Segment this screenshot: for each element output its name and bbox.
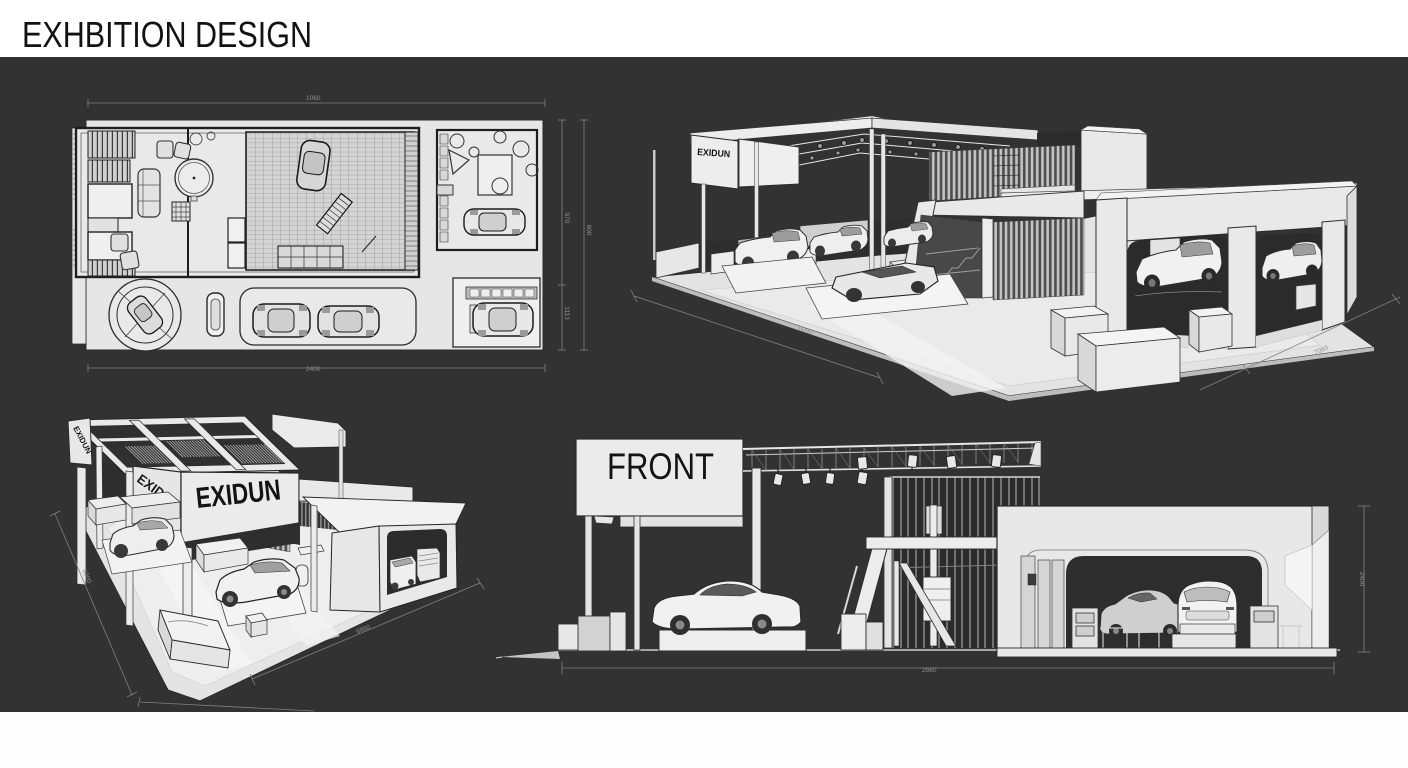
svg-text:EXHBITION DESIGN: EXHBITION DESIGN (22, 14, 312, 55)
svg-text:2860: 2860 (922, 667, 937, 674)
svg-text:970: 970 (563, 213, 570, 224)
svg-text:1113: 1113 (563, 306, 570, 320)
svg-text:2400: 2400 (1358, 572, 1365, 587)
svg-text:600: 600 (585, 225, 592, 236)
svg-text:FRONT: FRONT (607, 446, 714, 487)
svg-text:2400: 2400 (306, 366, 321, 373)
svg-text:1060: 1060 (306, 95, 321, 102)
svg-text:EXIDUN: EXIDUN (697, 147, 731, 160)
